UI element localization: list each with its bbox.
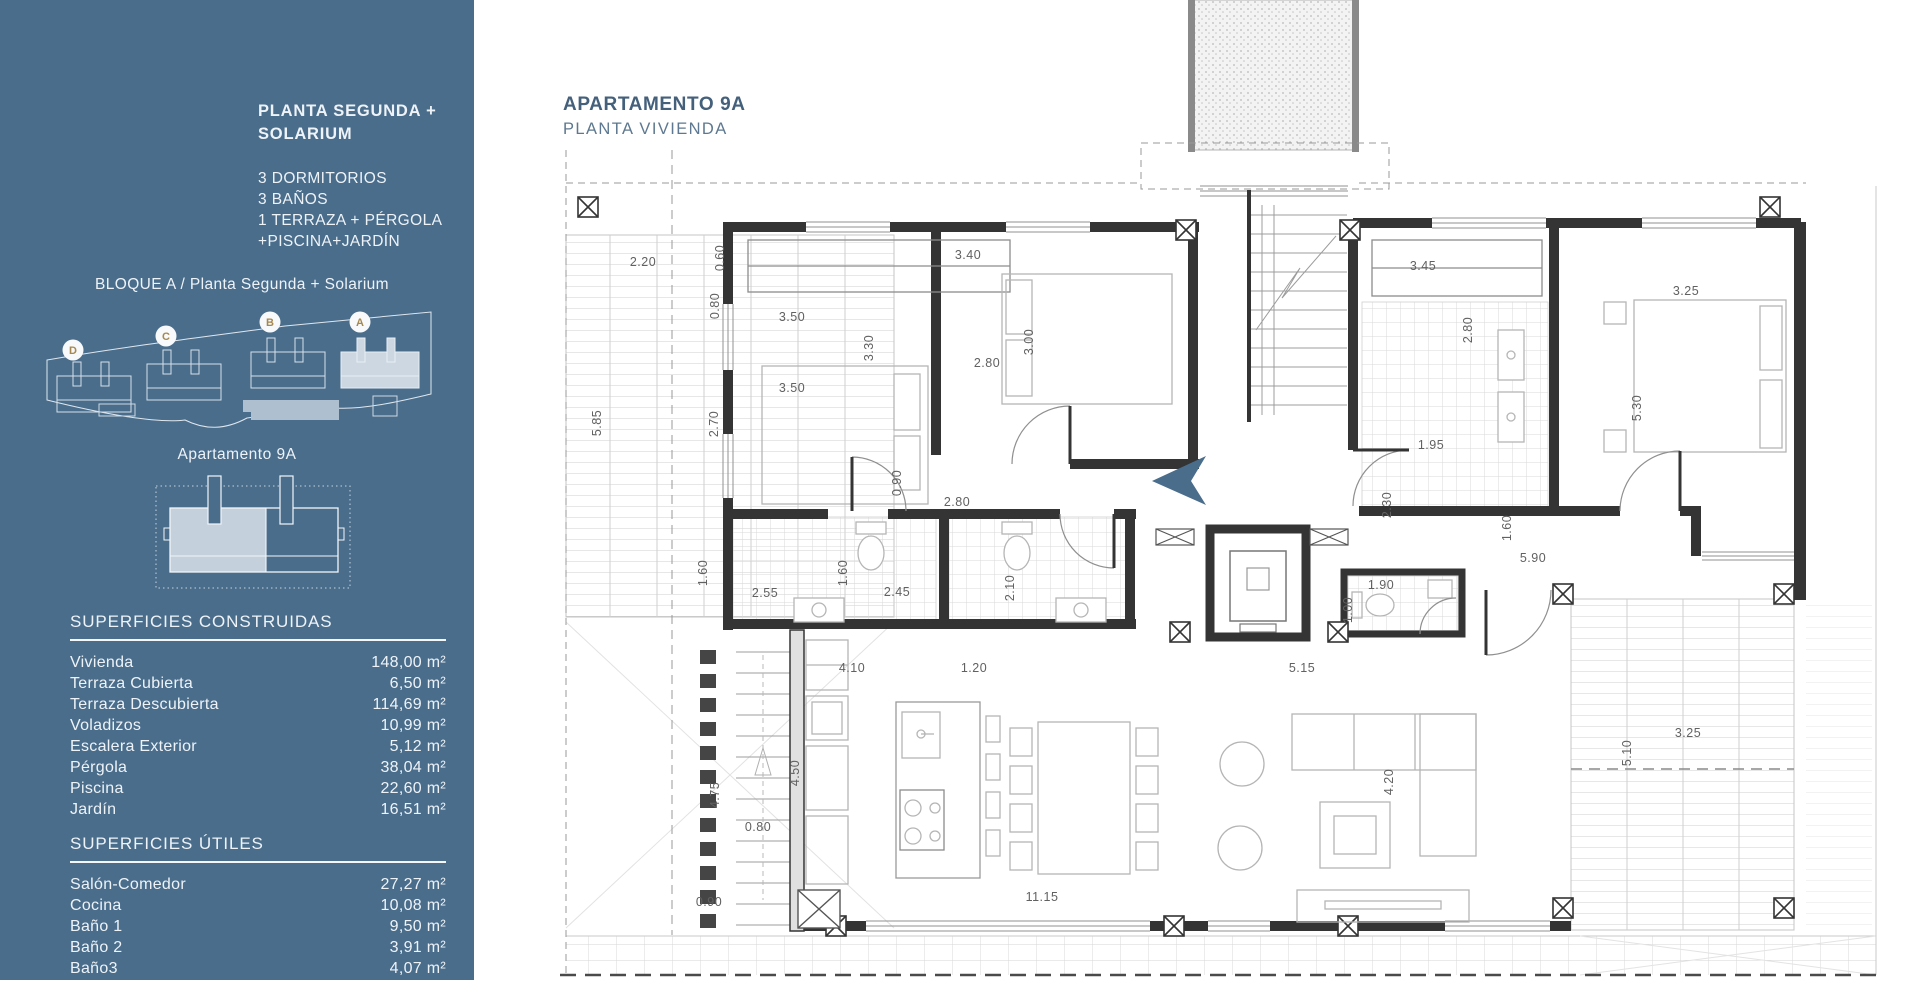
surface-row: Terraza Descubierta 114,69 m² bbox=[70, 694, 446, 715]
svg-text:3.25: 3.25 bbox=[1673, 284, 1699, 298]
kitchen-shaft bbox=[798, 890, 840, 928]
block-c bbox=[147, 350, 221, 400]
stairwell-block bbox=[1141, 0, 1389, 196]
svg-text:0.80: 0.80 bbox=[708, 293, 722, 319]
feature-item: 3 DORMITORIOS bbox=[258, 168, 468, 189]
surface-label: Baño 2 bbox=[70, 937, 123, 958]
floorplan-page: { "colors":{ "sidebar_bg":"#4A6D8C", "ac… bbox=[0, 0, 1920, 980]
svg-text:3.25: 3.25 bbox=[1675, 726, 1701, 740]
surface-value: 10,08 m² bbox=[380, 895, 446, 916]
surface-value: 10,99 m² bbox=[380, 715, 446, 736]
block-b bbox=[251, 338, 325, 388]
surface-label: Baño3 bbox=[70, 958, 118, 979]
surface-value: 16,51 m² bbox=[380, 799, 446, 820]
surface-value: 38,04 m² bbox=[380, 757, 446, 778]
surface-row: Vivienda 148,00 m² bbox=[70, 652, 446, 673]
surface-row: Terraza Cubierta 6,50 m² bbox=[70, 673, 446, 694]
surface-row: Jardín 16,51 m² bbox=[70, 799, 446, 820]
svg-text:3.50: 3.50 bbox=[779, 310, 805, 324]
surface-row: Baño 2 3,91 m² bbox=[70, 937, 446, 958]
svg-text:1.60: 1.60 bbox=[1500, 515, 1514, 541]
svg-text:2.10: 2.10 bbox=[1003, 575, 1017, 601]
svg-text:2.80: 2.80 bbox=[944, 495, 970, 509]
surface-value: 5,12 m² bbox=[390, 736, 446, 757]
surface-label: Jardín bbox=[70, 799, 116, 820]
surface-label: Piscina bbox=[70, 778, 124, 799]
surface-label: Terraza Descubierta bbox=[70, 694, 219, 715]
useful-surfaces-heading: SUPERFICIES ÚTILES bbox=[70, 834, 446, 863]
svg-text:5.90: 5.90 bbox=[1520, 551, 1546, 565]
svg-text:2.45: 2.45 bbox=[884, 585, 910, 599]
svg-text:5.85: 5.85 bbox=[590, 410, 604, 436]
sidebar: PLANTA SEGUNDA + SOLARIUM 3 DORMITORIOS3… bbox=[0, 0, 474, 980]
interior-stairs bbox=[1251, 205, 1347, 415]
surface-label: Escalera Exterior bbox=[70, 736, 197, 757]
surface-value: 9,50 m² bbox=[390, 916, 446, 937]
svg-text:0.80: 0.80 bbox=[745, 820, 771, 834]
sidebar-intro: PLANTA SEGUNDA + SOLARIUM 3 DORMITORIOS3… bbox=[258, 100, 468, 252]
surface-row: Piscina 22,60 m² bbox=[70, 778, 446, 799]
surface-tables: SUPERFICIES CONSTRUIDAS Vivienda 148,00 … bbox=[70, 612, 446, 993]
surface-label: Voladizos bbox=[70, 715, 141, 736]
surface-label: Terraza Cubierta bbox=[70, 673, 193, 694]
svg-text:3.30: 3.30 bbox=[862, 335, 876, 361]
bottom-terrace-band bbox=[566, 936, 1876, 975]
surface-row: Voladizos 10,99 m² bbox=[70, 715, 446, 736]
svg-text:4.50: 4.50 bbox=[788, 760, 802, 786]
surface-value: 3,91 m² bbox=[390, 937, 446, 958]
svg-text:D: D bbox=[69, 345, 77, 357]
svg-text:2.30: 2.30 bbox=[1380, 492, 1394, 518]
feature-list: 3 DORMITORIOS3 BAÑOS1 TERRAZA + PÉRGOLA+… bbox=[258, 168, 468, 252]
surface-value: 22,60 m² bbox=[380, 778, 446, 799]
site-pool-step bbox=[243, 400, 251, 412]
site-plan-map: DCBA bbox=[35, 302, 445, 467]
surface-row: Baño 1 9,50 m² bbox=[70, 916, 446, 937]
plan-title: APARTAMENTO 9A bbox=[563, 94, 746, 116]
svg-text:3.00: 3.00 bbox=[1022, 329, 1036, 355]
feature-item: +PISCINA+JARDÍN bbox=[258, 231, 468, 252]
block-label: BLOQUE A / Planta Segunda + Solarium bbox=[20, 276, 464, 294]
surface-label: Vivienda bbox=[70, 652, 134, 673]
svg-text:4.20: 4.20 bbox=[1382, 769, 1396, 795]
svg-text:1.60: 1.60 bbox=[696, 560, 710, 586]
right-solarium-pergola bbox=[1571, 599, 1872, 930]
svg-text:2.55: 2.55 bbox=[752, 586, 778, 600]
floor-title: PLANTA SEGUNDA + SOLARIUM bbox=[258, 100, 468, 146]
svg-text:3.40: 3.40 bbox=[955, 248, 981, 262]
svg-text:A: A bbox=[356, 317, 364, 329]
surface-label: Pérgola bbox=[70, 757, 127, 778]
svg-text:2.80: 2.80 bbox=[1461, 317, 1475, 343]
svg-text:3.45: 3.45 bbox=[1410, 259, 1436, 273]
useful-surfaces-table: Salón-Comedor 27,27 m² Cocina 10,08 m² B… bbox=[70, 874, 446, 979]
site-detail-2 bbox=[373, 396, 397, 416]
svg-text:2.70: 2.70 bbox=[707, 411, 721, 437]
svg-text:2.80: 2.80 bbox=[974, 356, 1000, 370]
svg-text:11.15: 11.15 bbox=[1026, 890, 1059, 904]
svg-text:5.10: 5.10 bbox=[1620, 740, 1634, 766]
surface-value: 114,69 m² bbox=[372, 694, 446, 715]
svg-text:1.95: 1.95 bbox=[1418, 438, 1444, 452]
feature-item: 1 TERRAZA + PÉRGOLA bbox=[258, 210, 468, 231]
surface-row: Escalera Exterior 5,12 m² bbox=[70, 736, 446, 757]
surface-row: Baño3 4,07 m² bbox=[70, 958, 446, 979]
surface-row: Cocina 10,08 m² bbox=[70, 895, 446, 916]
elevator bbox=[1156, 529, 1348, 637]
surface-value: 27,27 m² bbox=[380, 874, 446, 895]
svg-text:1.60: 1.60 bbox=[836, 560, 850, 586]
svg-text:4.10: 4.10 bbox=[839, 661, 865, 675]
surface-row: Pérgola 38,04 m² bbox=[70, 757, 446, 778]
svg-text:1.90: 1.90 bbox=[1368, 578, 1394, 592]
site-detail-1 bbox=[99, 404, 135, 416]
svg-text:1.00: 1.00 bbox=[1341, 597, 1355, 623]
apartment-plan-icon bbox=[148, 468, 358, 598]
svg-text:0.90: 0.90 bbox=[696, 895, 722, 909]
constructed-surfaces-table: Vivienda 148,00 m² Terraza Cubierta 6,50… bbox=[70, 652, 446, 820]
surface-value: 4,07 m² bbox=[390, 958, 446, 979]
svg-text:5.15: 5.15 bbox=[1289, 661, 1315, 675]
svg-text:5.30: 5.30 bbox=[1630, 395, 1644, 421]
svg-text:3.50: 3.50 bbox=[779, 381, 805, 395]
block-badges: DCBA bbox=[63, 312, 371, 361]
surface-label: Baño 1 bbox=[70, 916, 123, 937]
svg-text:2.20: 2.20 bbox=[630, 255, 656, 269]
svg-text:0.60: 0.60 bbox=[713, 245, 727, 271]
svg-text:C: C bbox=[162, 331, 170, 343]
constructed-surfaces-heading: SUPERFICIES CONSTRUIDAS bbox=[70, 612, 446, 641]
plan-subtitle: PLANTA VIVIENDA bbox=[563, 120, 728, 139]
svg-text:1.20: 1.20 bbox=[961, 661, 987, 675]
surface-value: 148,00 m² bbox=[371, 652, 446, 673]
surface-value: 6,50 m² bbox=[390, 673, 446, 694]
svg-text:B: B bbox=[266, 317, 274, 329]
feature-item: 3 BAÑOS bbox=[258, 189, 468, 210]
surface-row: Salón-Comedor 27,27 m² bbox=[70, 874, 446, 895]
block-a-highlighted bbox=[341, 338, 419, 388]
svg-text:4.75: 4.75 bbox=[708, 782, 722, 808]
apartment-label: Apartamento 9A bbox=[0, 446, 474, 464]
surface-label: Salón-Comedor bbox=[70, 874, 186, 895]
svg-text:0.90: 0.90 bbox=[890, 470, 904, 496]
site-pool bbox=[251, 400, 339, 420]
surface-label: Cocina bbox=[70, 895, 122, 916]
